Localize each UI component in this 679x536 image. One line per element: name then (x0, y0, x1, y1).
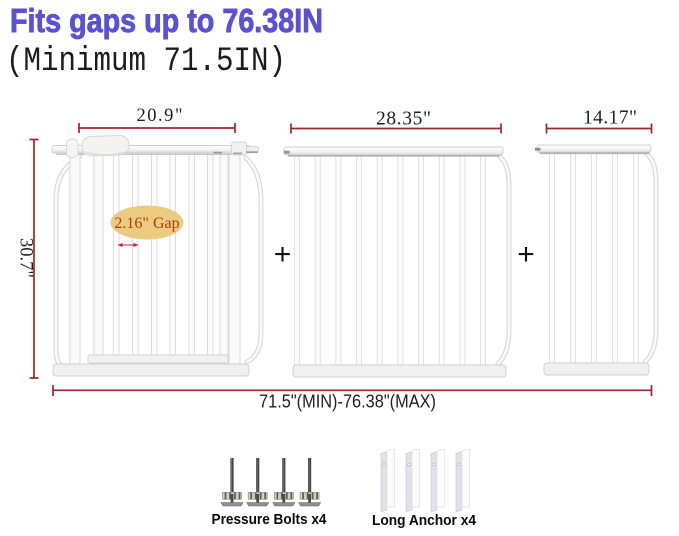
svg-text:+: + (517, 238, 535, 271)
svg-text:28.35": 28.35" (376, 109, 431, 130)
svg-text:30.7": 30.7" (16, 238, 36, 278)
svg-text:71.5"(MIN)-76.38"(MAX): 71.5"(MIN)-76.38"(MAX) (259, 392, 436, 412)
svg-text:(Minimum 71.5IN): (Minimum 71.5IN) (6, 43, 286, 81)
svg-text:Fits gaps up to 76.38IN: Fits gaps up to 76.38IN (10, 2, 323, 39)
svg-text:20.9": 20.9" (137, 106, 183, 126)
svg-text:14.17": 14.17" (583, 108, 637, 129)
svg-text:Pressure Bolts x4: Pressure Bolts x4 (212, 511, 328, 528)
svg-text:+: + (274, 238, 292, 271)
svg-text:Long Anchor x4: Long Anchor x4 (372, 512, 477, 529)
svg-text:2.16" Gap: 2.16" Gap (114, 215, 179, 232)
